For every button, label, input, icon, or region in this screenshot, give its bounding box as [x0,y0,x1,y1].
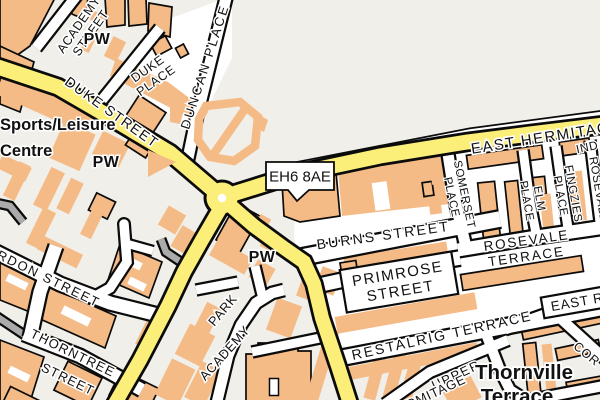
svg-text:EH6 8AE: EH6 8AE [269,169,331,186]
svg-text:PW: PW [249,249,276,266]
svg-text:PW: PW [84,31,111,48]
svg-text:Terrace: Terrace [481,385,554,400]
svg-text:PW: PW [93,154,120,171]
svg-text:Centre: Centre [0,142,52,160]
svg-text:Sports/Leisure: Sports/Leisure [0,116,116,134]
svg-text:Thornville: Thornville [475,361,573,384]
